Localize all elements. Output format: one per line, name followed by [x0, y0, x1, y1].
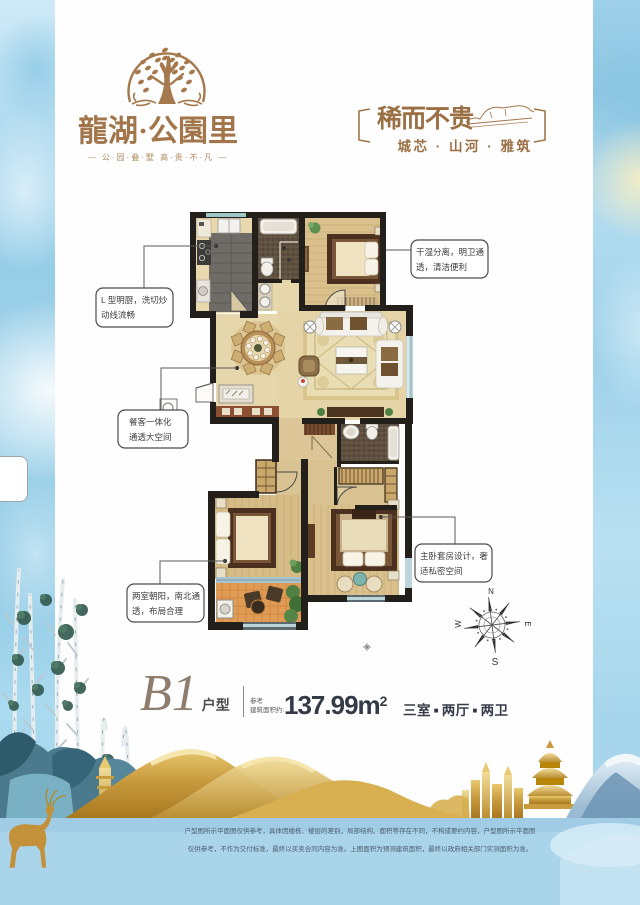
- svg-text:龍湖·公園里: 龍湖·公園里: [78, 114, 238, 148]
- svg-text:通透大空间: 通透大空间: [129, 432, 172, 442]
- svg-text:稀而不贵: 稀而不贵: [377, 105, 474, 133]
- svg-text:餐客一体化: 餐客一体化: [129, 417, 172, 427]
- svg-text:干湿分离，明卫通: 干湿分离，明卫通: [416, 247, 485, 257]
- svg-text:L 型明厨，洗切炒: L 型明厨，洗切炒: [101, 295, 168, 305]
- svg-text:透，清洁便利: 透，清洁便利: [416, 262, 467, 272]
- svg-text:— 公·园·叠·墅 高·贵·不·凡 —: — 公·园·叠·墅 高·贵·不·凡 —: [88, 152, 229, 162]
- svg-text:动线流畅: 动线流畅: [101, 310, 136, 320]
- svg-text:城芯 · 山河 · 雅筑: 城芯 · 山河 · 雅筑: [398, 138, 533, 154]
